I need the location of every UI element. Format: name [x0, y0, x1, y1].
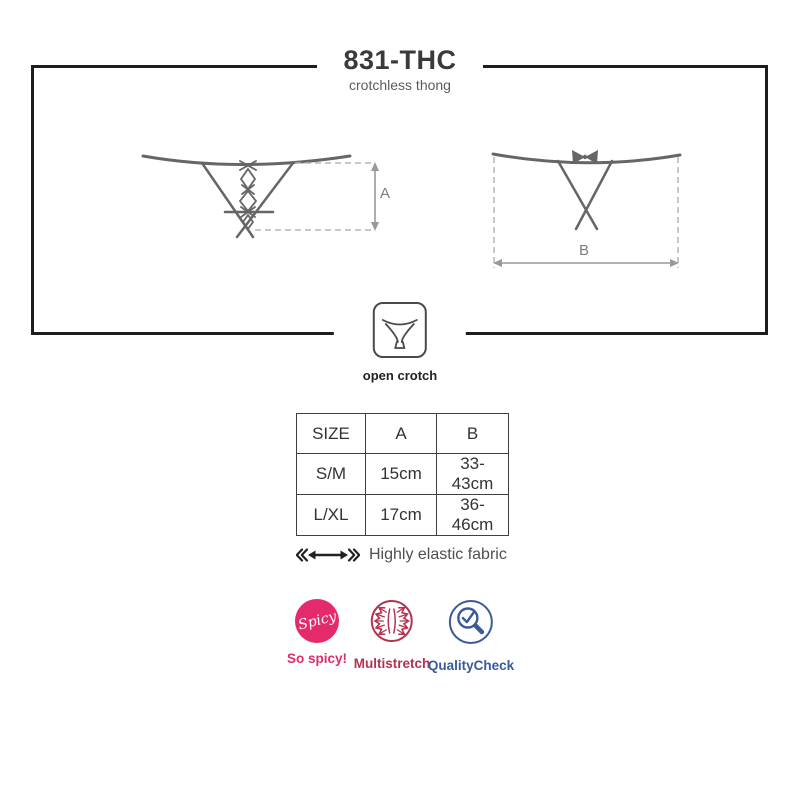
measure-label-b: B: [579, 242, 589, 259]
size-cell: L/XL: [297, 495, 366, 536]
open-crotch-icon: [372, 301, 428, 359]
size-table-header-size: SIZE: [297, 414, 366, 454]
elastic-arrow-icon: [296, 546, 360, 564]
badge-spicy: Spicy So spicy!: [287, 599, 347, 666]
spicy-badge-icon: Spicy: [295, 599, 339, 643]
b-cell: 33-43cm: [437, 454, 509, 495]
multistretch-badge-label: Multistretch: [354, 656, 431, 671]
elastic-fabric-note: Highly elastic fabric: [296, 546, 507, 564]
b-cell: 36-46cm: [437, 495, 509, 536]
a-cell: 17cm: [366, 495, 437, 536]
measure-a-dashed-lines: [255, 163, 372, 230]
product-subtitle: crotchless thong: [0, 77, 800, 93]
lacing-detail: [240, 161, 256, 229]
qualitycheck-badge-label: QualityCheck: [428, 658, 514, 673]
header: 831-THC crotchless thong: [0, 45, 800, 93]
spicy-badge-label: So spicy!: [287, 651, 347, 666]
size-table-header-a: A: [366, 414, 437, 454]
elastic-fabric-label: Highly elastic fabric: [369, 546, 507, 564]
size-cell: S/M: [297, 454, 366, 495]
measure-a-arrow: [371, 162, 379, 231]
multistretch-icon: [370, 599, 414, 643]
table-row: S/M 15cm 33-43cm: [297, 454, 509, 495]
size-table-header-b: B: [437, 414, 509, 454]
measure-b-arrow: [493, 259, 679, 267]
measure-label-a: A: [380, 185, 390, 202]
a-cell: 15cm: [366, 454, 437, 495]
size-table-header-row: SIZE A B: [297, 414, 509, 454]
product-title: 831-THC: [317, 45, 482, 75]
badge-qualitycheck: QualityCheck: [428, 599, 514, 673]
thong-front-diagram: [143, 156, 350, 237]
open-crotch-label: open crotch: [363, 368, 437, 383]
spicy-badge-text: Spicy: [296, 609, 338, 634]
thong-back-diagram: [493, 154, 680, 229]
table-row: L/XL 17cm 36-46cm: [297, 495, 509, 536]
size-table: SIZE A B S/M 15cm 33-43cm L/XL 17cm 36-4…: [296, 413, 509, 536]
qualitycheck-icon: [448, 599, 494, 645]
open-crotch-feature: open crotch: [334, 301, 466, 383]
thong-measurement-diagram: [31, 65, 768, 335]
badge-multistretch: Multistretch: [354, 599, 431, 671]
